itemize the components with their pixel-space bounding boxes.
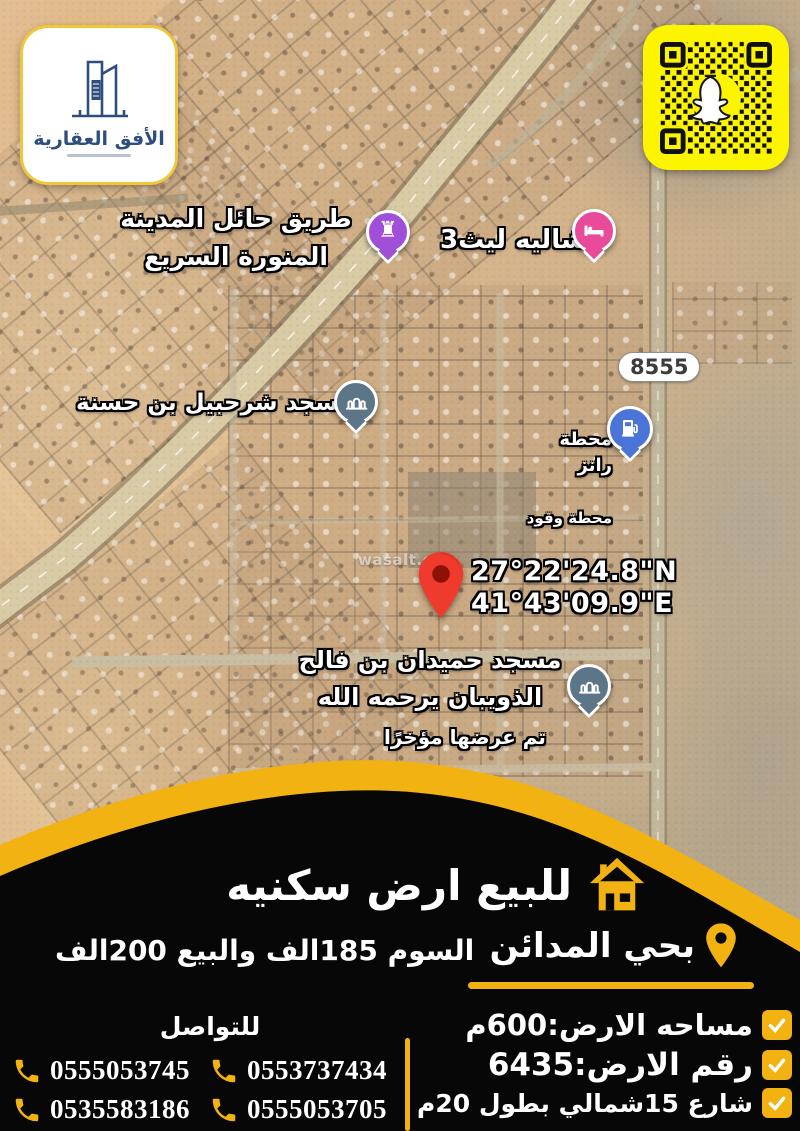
castle-rook-icon: ♜ bbox=[378, 220, 398, 242]
listing-info-panel: للبيع ارض سكنيه بحي المدائن السوم 185الف… bbox=[0, 760, 800, 1131]
route-number-badge: 8555 bbox=[618, 352, 700, 382]
phone-number: 0555053745 bbox=[50, 1055, 190, 1086]
detail-number-text: رقم الارض:6435 bbox=[488, 1047, 753, 1083]
gas-station-label: محطة رانز محطة وقود bbox=[524, 401, 612, 531]
map-urban-blocks bbox=[672, 282, 792, 364]
chalet-label: شاليه ليث3 bbox=[440, 221, 587, 260]
recently-shown-label: تم عرضها مؤخرًا bbox=[384, 722, 546, 752]
vertical-divider bbox=[405, 1038, 410, 1131]
detail-area-row: مساحه الارض:600م bbox=[465, 1008, 792, 1042]
longitude-value: 41°43'09.9"E bbox=[471, 588, 677, 620]
details-list: مساحه الارض:600م رقم الارض:6435 شارع 15ش… bbox=[417, 1008, 792, 1118]
mosque-hamidan-label: مسجد حميدان بن فالح الذويبان يرحمه الله bbox=[296, 642, 564, 716]
property-location-pin bbox=[417, 552, 465, 618]
listing-title-row: للبيع ارض سكنيه bbox=[226, 855, 648, 915]
listing-title: للبيع ارض سكنيه bbox=[226, 861, 572, 910]
phone-icon bbox=[209, 1056, 239, 1086]
gas-station-type: محطة وقود bbox=[527, 509, 612, 527]
phone-number: 0535583186 bbox=[50, 1094, 190, 1125]
gas-station-name: محطة رانز bbox=[559, 429, 612, 476]
phone-icon bbox=[209, 1095, 239, 1125]
highway-label: طريق حائل المدينة المنورة السريع bbox=[112, 200, 360, 275]
phone-row: 0555053745 bbox=[12, 1055, 203, 1086]
neighborhood-row: بحي المدائن bbox=[490, 923, 737, 969]
phone-icon bbox=[12, 1056, 42, 1086]
neighborhood-name: بحي المدائن bbox=[490, 926, 695, 966]
company-logo-card: الأفق العقارية bbox=[20, 25, 178, 185]
fuel-pump-icon bbox=[618, 417, 642, 441]
mosque-icon bbox=[344, 392, 369, 412]
map-terrain-patch bbox=[630, 340, 800, 700]
location-pin-icon bbox=[705, 923, 737, 969]
checkbox-icon bbox=[762, 1010, 792, 1040]
phone-row: 0535583186 bbox=[12, 1094, 203, 1125]
mosque-icon bbox=[577, 676, 602, 696]
detail-street-row: شارع 15شمالي بطول 20م bbox=[417, 1088, 792, 1118]
phone-number: 0555053705 bbox=[247, 1094, 387, 1125]
mosque-poi-pin bbox=[334, 380, 378, 424]
snapchat-qr-code-icon bbox=[654, 36, 778, 160]
price-text: السوم 185الف والبيع 200الف bbox=[55, 934, 474, 967]
building-skyline-icon bbox=[58, 54, 140, 124]
mosque-poi-pin bbox=[567, 664, 611, 708]
phone-number: 0553737434 bbox=[247, 1055, 387, 1086]
logo-tagline-bar bbox=[67, 154, 131, 157]
mosque-sharhabil-label: مسجد شرحبيل بن حسنة bbox=[76, 386, 353, 421]
snapchat-qr-card bbox=[643, 25, 789, 170]
hotel-poi-pin bbox=[572, 209, 616, 253]
castle-poi-pin: ♜ bbox=[366, 210, 410, 254]
phone-row: 0555053705 bbox=[209, 1094, 400, 1125]
company-name: الأفق العقارية bbox=[33, 128, 165, 150]
checkbox-icon bbox=[762, 1088, 792, 1118]
real-estate-flyer: ♜ bbox=[0, 0, 800, 1131]
phone-grid: 0555053745 0553737434 0535583186 0555053… bbox=[12, 1055, 400, 1125]
checkbox-icon bbox=[762, 1050, 792, 1080]
detail-street-text: شارع 15شمالي بطول 20م bbox=[417, 1089, 753, 1118]
latitude-value: 27°22'24.8"N bbox=[471, 556, 677, 588]
detail-area-text: مساحه الارض:600م bbox=[465, 1008, 753, 1042]
bed-icon bbox=[582, 219, 606, 243]
detail-number-row: رقم الارض:6435 bbox=[488, 1047, 792, 1083]
neighborhood-underline bbox=[468, 982, 754, 989]
gps-coordinates-label: 27°22'24.8"N 41°43'09.9"E bbox=[471, 556, 677, 621]
contact-heading: للتواصل bbox=[150, 1012, 270, 1041]
phone-icon bbox=[12, 1095, 42, 1125]
phone-row: 0553737434 bbox=[209, 1055, 400, 1086]
gas-station-poi-pin bbox=[607, 406, 653, 452]
house-icon bbox=[586, 855, 648, 915]
